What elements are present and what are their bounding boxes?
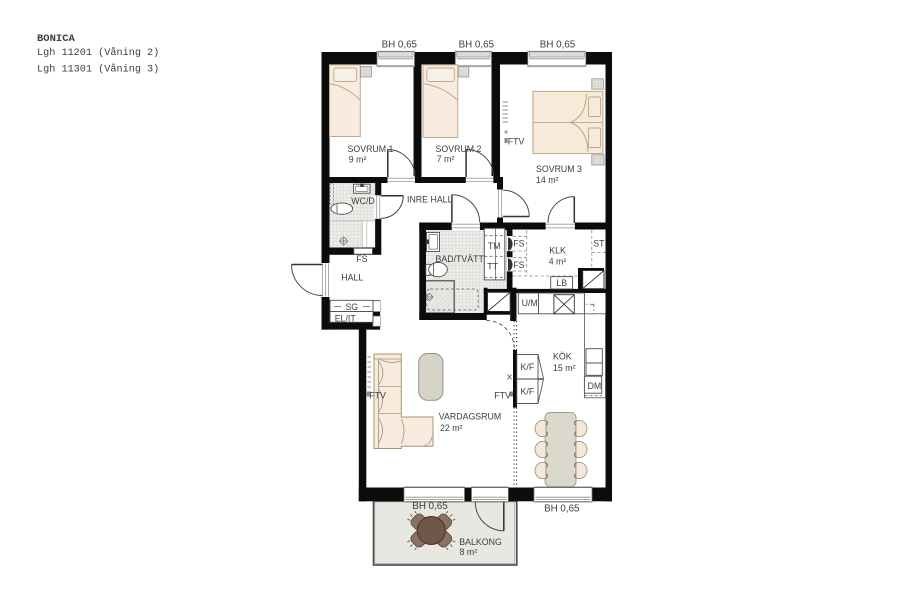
svg-text:DM: DM <box>588 381 602 391</box>
svg-text:LB: LB <box>556 278 567 288</box>
svg-text:Lgh 11301 (Våning 3): Lgh 11301 (Våning 3) <box>37 62 159 75</box>
svg-text:K/F: K/F <box>521 386 535 396</box>
svg-text:22 m²: 22 m² <box>440 423 463 433</box>
svg-text:SOVRUM 3: SOVRUM 3 <box>536 164 582 174</box>
svg-text:HALL: HALL <box>341 273 363 283</box>
svg-text:INRE HALL: INRE HALL <box>407 194 453 204</box>
svg-text:BH 0,65: BH 0,65 <box>382 40 418 51</box>
svg-text:FS: FS <box>513 260 524 270</box>
svg-text:9 m²: 9 m² <box>349 154 367 164</box>
svg-text:BH 0,65: BH 0,65 <box>544 503 580 514</box>
svg-text:FS: FS <box>356 254 367 264</box>
svg-text:BH 0,65: BH 0,65 <box>412 501 448 512</box>
svg-text:FTV: FTV <box>508 136 525 146</box>
svg-text:K/F: K/F <box>521 362 535 372</box>
svg-text:BH 0,65: BH 0,65 <box>459 40 495 51</box>
svg-text:4 m²: 4 m² <box>549 256 567 266</box>
svg-text:TT: TT <box>487 261 498 271</box>
svg-text:15 m²: 15 m² <box>553 363 576 373</box>
svg-text:8 m²: 8 m² <box>460 547 478 557</box>
svg-text:BAD/TVÄTT: BAD/TVÄTT <box>436 254 485 264</box>
svg-text:ST: ST <box>593 238 605 248</box>
svg-text:FTV: FTV <box>369 390 386 400</box>
svg-text:FTV: FTV <box>494 390 511 400</box>
svg-text:KLK: KLK <box>549 245 566 255</box>
svg-text:SG: SG <box>345 302 358 312</box>
svg-text:TM: TM <box>488 241 501 251</box>
svg-text:VARDAGSRUM: VARDAGSRUM <box>439 412 501 422</box>
svg-text:WC/D: WC/D <box>351 196 374 206</box>
svg-text:BONICA: BONICA <box>37 33 76 45</box>
svg-text:SOVRUM 1: SOVRUM 1 <box>348 144 394 154</box>
svg-text:EL/IT: EL/IT <box>335 313 357 323</box>
svg-text:FS: FS <box>513 239 524 249</box>
svg-text:7 m²: 7 m² <box>437 154 455 164</box>
svg-text:BALKONG: BALKONG <box>459 537 502 547</box>
svg-text:14 m²: 14 m² <box>536 175 559 185</box>
svg-text:U/M: U/M <box>522 298 538 308</box>
svg-text:BH 0,65: BH 0,65 <box>540 40 576 51</box>
svg-text:KÖK: KÖK <box>553 352 572 362</box>
svg-text:Lgh 11201 (Våning 2): Lgh 11201 (Våning 2) <box>37 46 159 59</box>
svg-text:SOVRUM 2: SOVRUM 2 <box>436 144 482 154</box>
